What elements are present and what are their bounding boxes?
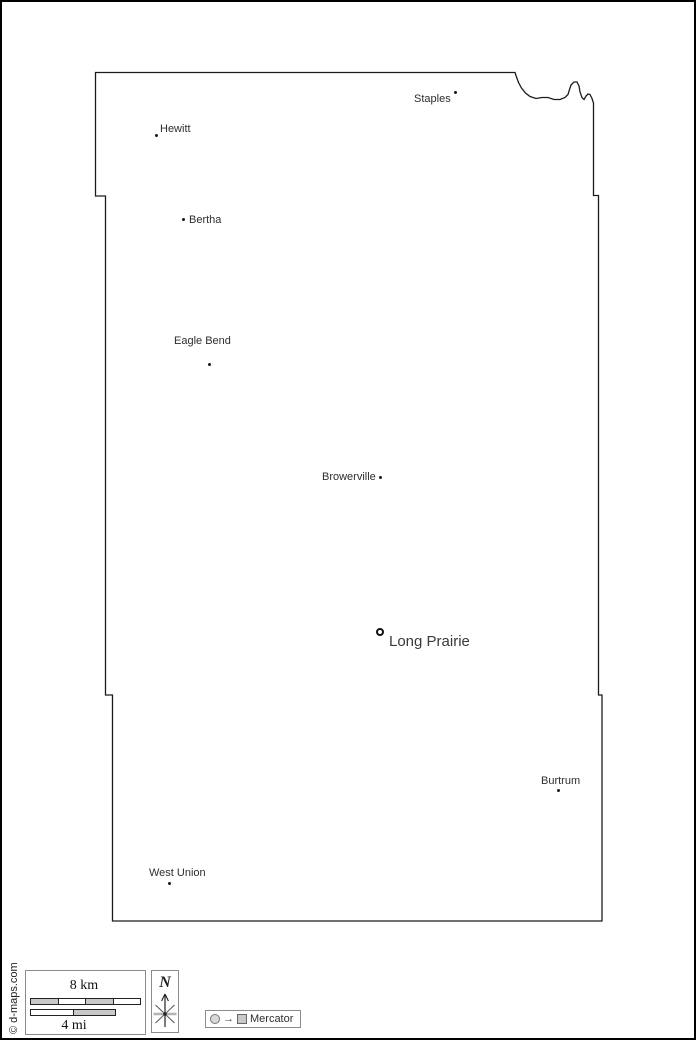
copyright-text: © d-maps.com	[8, 962, 20, 1034]
north-arrow-box: N	[151, 970, 179, 1033]
projected-square-icon	[237, 1014, 247, 1024]
city-marker-dot	[155, 134, 158, 137]
city-marker-dot	[379, 476, 382, 479]
city-label: Long Prairie	[389, 634, 470, 650]
city-marker-dot	[557, 789, 560, 792]
scale-segment	[31, 999, 58, 1004]
scale-bar-km	[30, 998, 141, 1005]
projection-label: Mercator	[250, 1013, 293, 1025]
scale-segment	[58, 999, 86, 1004]
city-label: Browerville	[322, 471, 376, 483]
scale-segment	[85, 999, 113, 1004]
scale-segment	[31, 1010, 73, 1015]
north-label: N	[152, 974, 178, 992]
map-page: Staples Hewitt Bertha Eagle Bend Browerv…	[0, 0, 696, 1040]
city-label: Hewitt	[160, 123, 191, 135]
city-label: Burtrum	[541, 775, 580, 787]
scale-bar-box: 8 km 4 mi	[25, 970, 146, 1035]
arrow-right-icon: →	[223, 1014, 234, 1024]
compass-rose-icon	[153, 992, 177, 1030]
city-marker-dot	[182, 218, 185, 221]
county-seat-marker	[376, 628, 384, 636]
city-label: West Union	[149, 867, 206, 879]
city-label: Bertha	[189, 214, 221, 226]
county-outline-map	[2, 2, 696, 1040]
sphere-icon	[210, 1014, 220, 1024]
scale-bar-mi	[30, 1009, 116, 1016]
city-marker-dot	[208, 363, 211, 366]
projection-legend-box: → Mercator	[205, 1010, 301, 1028]
scale-km-label: 8 km	[28, 978, 140, 994]
city-label: Staples	[414, 93, 451, 105]
city-marker-dot	[168, 882, 171, 885]
scale-segment	[73, 1010, 116, 1015]
scale-mi-label: 4 mi	[28, 1018, 120, 1034]
scale-segment	[113, 999, 141, 1004]
city-label: Eagle Bend	[174, 335, 231, 347]
city-marker-dot	[454, 91, 457, 94]
county-boundary	[96, 73, 603, 922]
